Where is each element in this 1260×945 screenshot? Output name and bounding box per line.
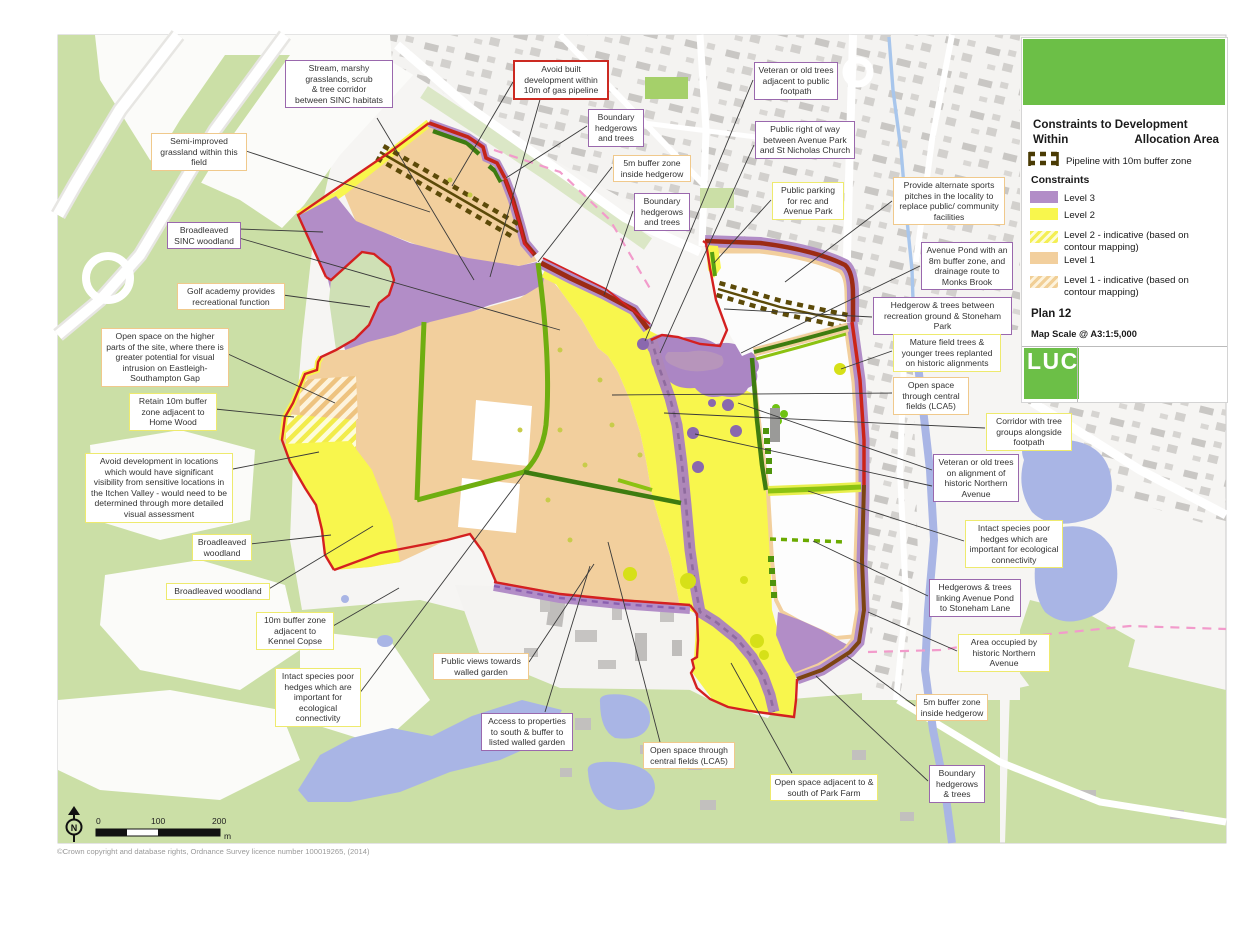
- svg-text:200: 200: [212, 816, 226, 826]
- svg-text:N: N: [71, 823, 78, 833]
- svg-text:0: 0: [96, 816, 101, 826]
- svg-text:100: 100: [151, 816, 165, 826]
- svg-text:m: m: [224, 831, 231, 841]
